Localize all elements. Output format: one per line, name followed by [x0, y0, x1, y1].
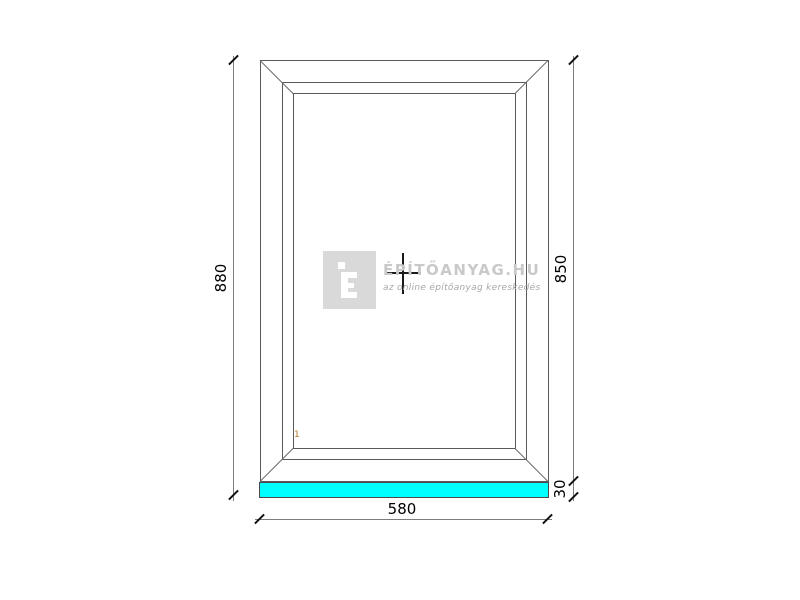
logo-letter-e-icon — [338, 262, 360, 298]
pane-number-label: 1 — [294, 430, 300, 440]
window-technical-drawing: 1 880 850 30 580 ÉPÍTŐANYAG.HU az online… — [0, 0, 800, 600]
dimension-frame-height: 850 — [552, 239, 570, 299]
watermark-subtitle: az online építőanyag kereskedés — [383, 283, 541, 293]
watermark-logo — [323, 251, 376, 309]
dimension-total-height: 880 — [212, 248, 230, 308]
dimension-line-bottom — [255, 519, 552, 520]
dimension-line-left — [233, 56, 234, 501]
dimension-sill-height: 30 — [551, 469, 569, 509]
window-sill — [259, 482, 549, 498]
watermark-title: ÉPÍTŐANYAG.HU — [383, 261, 540, 279]
dimension-width: 580 — [362, 500, 442, 518]
dimension-line-right — [573, 56, 574, 501]
